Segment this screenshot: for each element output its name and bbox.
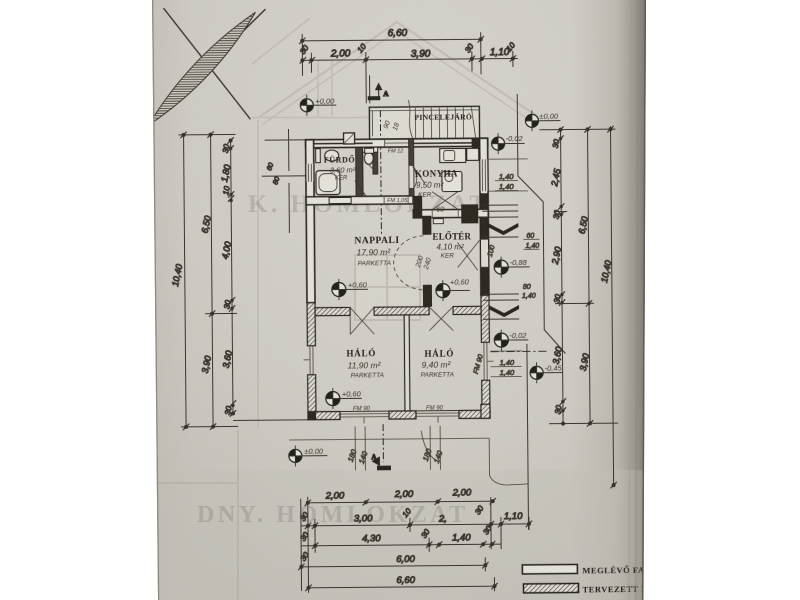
svg-text:9,40 m²: 9,40 m² [422, 360, 452, 370]
svg-text:2,00: 2,00 [394, 489, 414, 500]
svg-text:1,40: 1,40 [522, 293, 536, 300]
svg-text:FM 90: FM 90 [426, 406, 444, 412]
svg-text:FM 1,05: FM 1,05 [387, 198, 408, 204]
svg-text:4,10 m²: 4,10 m² [437, 242, 465, 251]
svg-text:2,00: 2,00 [452, 487, 472, 498]
svg-text:80: 80 [523, 284, 531, 291]
svg-text:3,60 m²: 3,60 m² [330, 165, 356, 174]
svg-text:2,00: 2,00 [325, 490, 345, 501]
svg-text:FM 12: FM 12 [388, 148, 404, 154]
svg-text:6,00: 6,00 [396, 554, 415, 565]
svg-text:3,00: 3,00 [354, 513, 373, 524]
svg-text:4,30: 4,30 [362, 533, 381, 544]
svg-text:2,00: 2,00 [330, 48, 351, 59]
svg-text:FÜRDŐ: FÜRDŐ [324, 154, 356, 164]
svg-text:9,50 m²: 9,50 m² [416, 181, 444, 190]
svg-text:-0,02: -0,02 [509, 331, 527, 340]
svg-text:11,90 m²: 11,90 m² [348, 360, 382, 370]
svg-text:1,40: 1,40 [499, 182, 515, 191]
svg-text:60: 60 [526, 233, 534, 240]
svg-text:1,40: 1,40 [499, 172, 515, 181]
svg-text:+0,60: +0,60 [450, 277, 470, 286]
svg-text:KER: KER [441, 253, 455, 260]
svg-text:6,60: 6,60 [388, 28, 408, 39]
svg-text:17,90 m²: 17,90 m² [357, 247, 392, 257]
svg-text:1,10: 1,10 [504, 511, 523, 522]
svg-text:ELŐTÉR: ELŐTÉR [432, 231, 471, 241]
svg-text:KONYHA: KONYHA [415, 168, 458, 178]
svg-text:-0,02: -0,02 [506, 134, 524, 143]
svg-text:1,40: 1,40 [500, 368, 516, 377]
svg-text:KER: KER [335, 175, 348, 181]
svg-text:HÁLÓ: HÁLÓ [346, 348, 376, 358]
svg-text:60: 60 [436, 207, 444, 214]
svg-text:PARKETTA: PARKETTA [358, 260, 391, 267]
svg-text:PARKETTA: PARKETTA [351, 372, 384, 379]
svg-text:A: A [371, 453, 376, 461]
svg-text:PARKETTA: PARKETTA [421, 372, 454, 379]
svg-text:1,40: 1,40 [452, 532, 471, 543]
svg-text:DNY. HOMLOKZAT: DNY. HOMLOKZAT [197, 502, 469, 528]
svg-text:±0,00: ±0,00 [539, 112, 559, 121]
svg-text:6,60: 6,60 [396, 575, 415, 586]
svg-text:1,40: 1,40 [500, 358, 516, 367]
svg-text:-0,45: -0,45 [545, 364, 563, 373]
svg-text:+0,60: +0,60 [348, 280, 368, 289]
svg-text:-0,88: -0,88 [510, 258, 528, 267]
svg-text:3,90: 3,90 [411, 49, 431, 60]
svg-text:NAPPALI: NAPPALI [354, 236, 399, 246]
svg-text:PINCELEJÁRÓ: PINCELEJÁRÓ [414, 111, 472, 122]
svg-text:KER: KER [418, 192, 432, 199]
svg-text:FM 90: FM 90 [353, 406, 371, 412]
svg-text:+0,00: +0,00 [315, 97, 335, 106]
svg-text:A: A [383, 89, 389, 98]
svg-text:±0,00: ±0,00 [304, 447, 324, 456]
svg-text:1,40: 1,40 [526, 243, 540, 250]
svg-text:HÁLÓ: HÁLÓ [424, 349, 454, 359]
svg-text:2,: 2, [438, 514, 447, 525]
svg-text:+0,60: +0,60 [342, 389, 362, 398]
